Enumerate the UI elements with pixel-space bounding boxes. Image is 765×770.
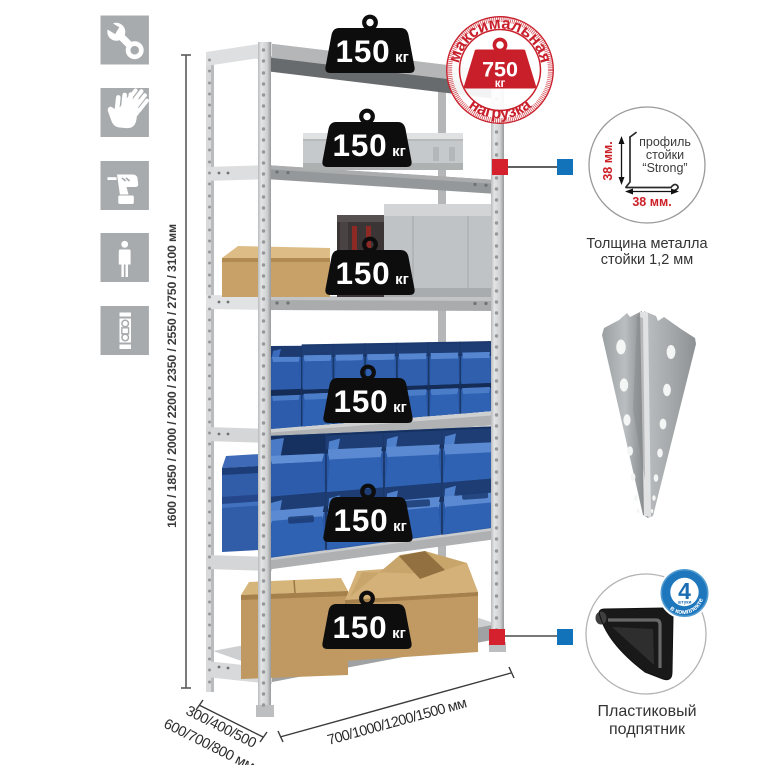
svg-text:кг: кг [495,78,506,90]
svg-text:кг: кг [395,271,409,288]
svg-text:150: 150 [333,127,388,163]
svg-text:38 мм.: 38 мм. [632,195,671,209]
svg-text:1600 / 1850 / 2000 / 2200 / 23: 1600 / 1850 / 2000 / 2200 / 2350 / 2550 … [165,224,179,528]
svg-text:кг: кг [395,49,409,66]
svg-text:кг: кг [393,399,407,416]
svg-text:стойки: стойки [646,148,684,162]
svg-text:штуки: штуки [678,600,692,605]
svg-text:кг: кг [393,518,407,535]
svg-text:“Strong”: “Strong” [642,161,687,175]
svg-text:Пластиковый: Пластиковый [597,703,696,720]
svg-text:Толщина металла: Толщина металла [586,236,708,252]
svg-text:150: 150 [333,609,388,645]
svg-text:стойки 1,2 мм: стойки 1,2 мм [601,252,694,268]
svg-text:38 мм.: 38 мм. [601,141,615,180]
svg-text:кг: кг [392,143,406,160]
svg-text:150: 150 [336,33,391,69]
svg-text:150: 150 [336,255,391,291]
svg-text:профиль: профиль [639,135,691,149]
svg-text:подпятник: подпятник [609,721,686,738]
svg-text:150: 150 [334,383,389,419]
svg-text:кг: кг [392,625,406,642]
svg-text:150: 150 [334,502,389,538]
